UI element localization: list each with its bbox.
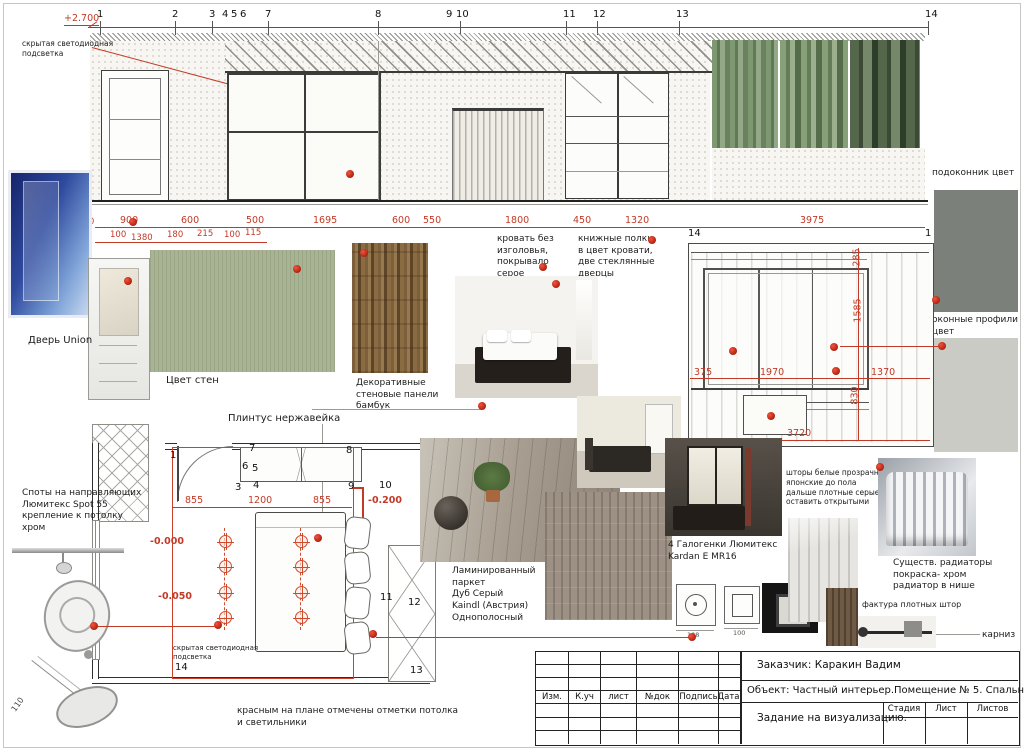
grid-label: 14: [688, 228, 701, 239]
spot-light-icon: [295, 535, 308, 548]
swatch-profile-color: [934, 338, 1018, 452]
grid-label: 7: [265, 9, 271, 20]
grid-label: 7: [249, 443, 255, 454]
grid-label: 12: [593, 9, 606, 20]
level-label: -0.050: [158, 591, 192, 602]
titleblock-col: лист: [601, 692, 636, 702]
plant-icon: [474, 462, 510, 492]
dim-label: 100: [110, 230, 126, 240]
grid-label: 3: [209, 9, 215, 20]
marker-dot: [729, 347, 737, 355]
marker-dot: [293, 265, 301, 273]
marker-dot: [648, 236, 656, 244]
grid-label: 14: [925, 9, 938, 20]
marker-dot: [129, 218, 137, 226]
dim-label: 3720: [787, 428, 811, 439]
dim-label: 1380: [131, 233, 153, 243]
halogen-fixture-drawing: [676, 584, 716, 626]
dim-label: 115: [245, 228, 261, 238]
marker-dot: [938, 342, 946, 350]
elevation-door: [101, 70, 169, 202]
spots-note: Споты на направляющих Люмитекс Spot 55 к…: [22, 488, 152, 535]
leader-line: [312, 409, 482, 410]
titleblock-col: Изм.: [536, 692, 568, 702]
photo-bamboo-3: [850, 40, 920, 148]
titleblock-col: Стадия: [884, 704, 924, 714]
finial-icon: [858, 627, 868, 637]
grid-label: 3: [235, 482, 241, 493]
marker-dot: [830, 343, 838, 351]
grid-label: 11: [563, 9, 576, 20]
dim-label: 1970: [760, 367, 784, 378]
elevation-shelving: [565, 73, 669, 199]
grid-label: 5: [231, 9, 237, 20]
dim-label: 375: [694, 367, 712, 378]
spot-light-icon: [295, 611, 308, 624]
dim-label: 550: [423, 215, 441, 226]
glazed-partition: [227, 73, 381, 201]
plan-pillow: [343, 586, 371, 620]
dim-label: 1370: [871, 367, 895, 378]
photo-bamboo-1: [712, 40, 778, 148]
plan-column-hatch: [388, 545, 436, 682]
elevation-panel-stripes: [452, 108, 544, 201]
dim-label: 180: [167, 230, 183, 240]
floor-line: [88, 200, 928, 202]
dim-label: 1695: [313, 215, 337, 226]
grid-label: 9: [446, 9, 452, 20]
marker-dot: [932, 296, 940, 304]
spot-light-icon: [219, 535, 232, 548]
grid-label: 13: [410, 665, 423, 676]
dim-label: 855: [185, 495, 203, 506]
profiles-color-label: оконные профили цвет: [932, 315, 1022, 338]
pendant-cap: [84, 650, 93, 659]
swatch-sill-color: [934, 190, 1018, 312]
level-label: -0.200: [368, 495, 402, 506]
dim-label: 3975: [800, 215, 824, 226]
dim-label: 600: [392, 215, 410, 226]
swatch-wood-grain: [545, 492, 672, 620]
photo-bedroom: [455, 276, 598, 398]
marker-dot: [478, 402, 486, 410]
marker-dot: [539, 263, 547, 271]
titleblock-object: Объект: Частный интерьер.Помещение № 5. …: [747, 685, 1024, 696]
dim-line: [690, 378, 930, 379]
dim-label: 285: [852, 248, 863, 266]
photo-blue-door: [8, 170, 92, 318]
grid-label: 10: [379, 480, 392, 491]
track-rail-sketch: [12, 548, 124, 553]
swatch-wall-color: [150, 250, 335, 372]
photo-interior-window: [665, 438, 782, 536]
wall-color-label: Цвет стен: [166, 374, 219, 387]
marker-dot: [767, 412, 775, 420]
grid-label: 13: [676, 9, 689, 20]
swatch-dark-wood: [826, 588, 858, 646]
spot-light-icon: [295, 560, 308, 573]
dim-label: 1800: [505, 215, 529, 226]
dim-label: 100: [224, 230, 240, 240]
ceiling-hatch: [90, 33, 710, 41]
plinth-label: Плинтус нержавейка: [228, 412, 340, 425]
titleblock-col: К.уч: [569, 692, 600, 702]
plan-red-note: красным на плане отмечены отметки потолк…: [237, 706, 497, 729]
level-label: -0.000: [150, 536, 184, 547]
titleblock-col: №док: [637, 692, 678, 702]
grid-label: 5: [252, 463, 258, 474]
halogen-label: 4 Галогенки Люмитекс Kardan E MR16: [668, 540, 778, 563]
grid-label: 9: [348, 481, 354, 492]
cornice-label: карниз: [982, 630, 1015, 642]
plan-pillow: [343, 621, 372, 656]
dim-label: 855: [313, 495, 331, 506]
wall-surface: [712, 148, 925, 201]
photo-bamboo-2: [780, 40, 848, 148]
titleblock-col: Лист: [926, 704, 966, 714]
titleblock-col: Листов: [968, 704, 1017, 714]
marker-dot: [552, 280, 560, 288]
grid-label: 14: [175, 662, 188, 673]
titleblock-col: Дата: [716, 692, 741, 702]
grid-line-top: [88, 27, 928, 28]
grid-label: 4: [222, 9, 228, 20]
window-wall-elevation: [688, 243, 934, 447]
marker-dot: [832, 367, 840, 375]
grid-label: 12: [408, 597, 421, 608]
spot-light-icon: [295, 586, 308, 599]
fixture-dim: 100: [733, 629, 745, 637]
leader-line: [376, 637, 692, 638]
swatch-bamboo-panel: [352, 243, 428, 373]
dim-line: [172, 507, 352, 508]
marker-dot: [346, 170, 354, 178]
door-label: Дверь Union: [28, 334, 92, 347]
dim-label: 1200: [248, 495, 272, 506]
marker-dot: [688, 633, 696, 641]
photo-radiator: [878, 458, 976, 556]
laminate-label: Ламинированный паркет Дуб Серый Kaindl (…: [452, 566, 562, 624]
dim-label: 1585: [853, 298, 864, 322]
cornice-line: [691, 259, 867, 260]
grid-label: 1: [925, 228, 931, 239]
titleblock-client: Заказчик: Каракин Вадим: [757, 659, 901, 671]
marker-dot: [214, 621, 222, 629]
titleblock-col: Подпись: [679, 692, 718, 702]
marker-dot: [876, 463, 884, 471]
grid-label: 1: [170, 450, 176, 461]
grid-label: 8: [375, 9, 381, 20]
grid-label: 2: [172, 9, 178, 20]
photo-union-door: [88, 258, 150, 400]
dim-label: 215: [197, 229, 213, 239]
dim-label: 500: [246, 215, 264, 226]
spot-light-icon: [219, 560, 232, 573]
beam-hatch: [225, 41, 712, 73]
grid-label: 4: [253, 480, 259, 491]
marker-dot: [90, 622, 98, 630]
grid-label: 10: [456, 9, 469, 20]
led-note-plan: скрытая светодиодная подсветка: [173, 644, 265, 662]
marker-dot: [314, 534, 322, 542]
dim-label: 1320: [625, 215, 649, 226]
sill-color-label: подоконник цвет: [932, 168, 1022, 180]
curtain-texture-label: фактура плотных штор: [862, 600, 961, 610]
dim-line: [95, 242, 267, 243]
marker-dot: [360, 249, 368, 257]
track-head-icon: [56, 562, 72, 574]
halogen-fixture-drawing: [724, 586, 760, 624]
dim-line: [95, 227, 925, 228]
bed-note: кровать без изголовья, покрывало серое: [497, 234, 577, 281]
grid-label: 11: [380, 592, 393, 603]
plan-pillow: [343, 551, 371, 585]
marker-dot: [369, 630, 377, 638]
dim-line: [858, 248, 859, 440]
grid-label: 8: [346, 445, 352, 456]
grid-label: 6: [240, 9, 246, 20]
radiators-label: Существ. радиаторы покраска- хром радиат…: [893, 558, 1003, 593]
dim-label: 450: [573, 215, 591, 226]
window-frame: [703, 268, 869, 390]
dim-label: 600: [181, 215, 199, 226]
sill-line: [691, 388, 869, 390]
design-sheet: 1 2 3 4 5 6 7 8 9 10 11 12 13 14 +2.700 …: [0, 0, 1024, 751]
marker-dot: [124, 277, 132, 285]
leader-line: [97, 626, 217, 627]
bamboo-panels-label: Декоративные стеновые панели бамбук: [356, 378, 446, 413]
grid-label: 6: [242, 461, 248, 472]
vase-icon: [434, 496, 468, 530]
spot-light-icon: [219, 586, 232, 599]
leader-line: [840, 346, 942, 347]
photo-cornice: [858, 616, 936, 648]
plan-pillow: [343, 516, 372, 551]
dim-label: 830: [850, 386, 861, 404]
